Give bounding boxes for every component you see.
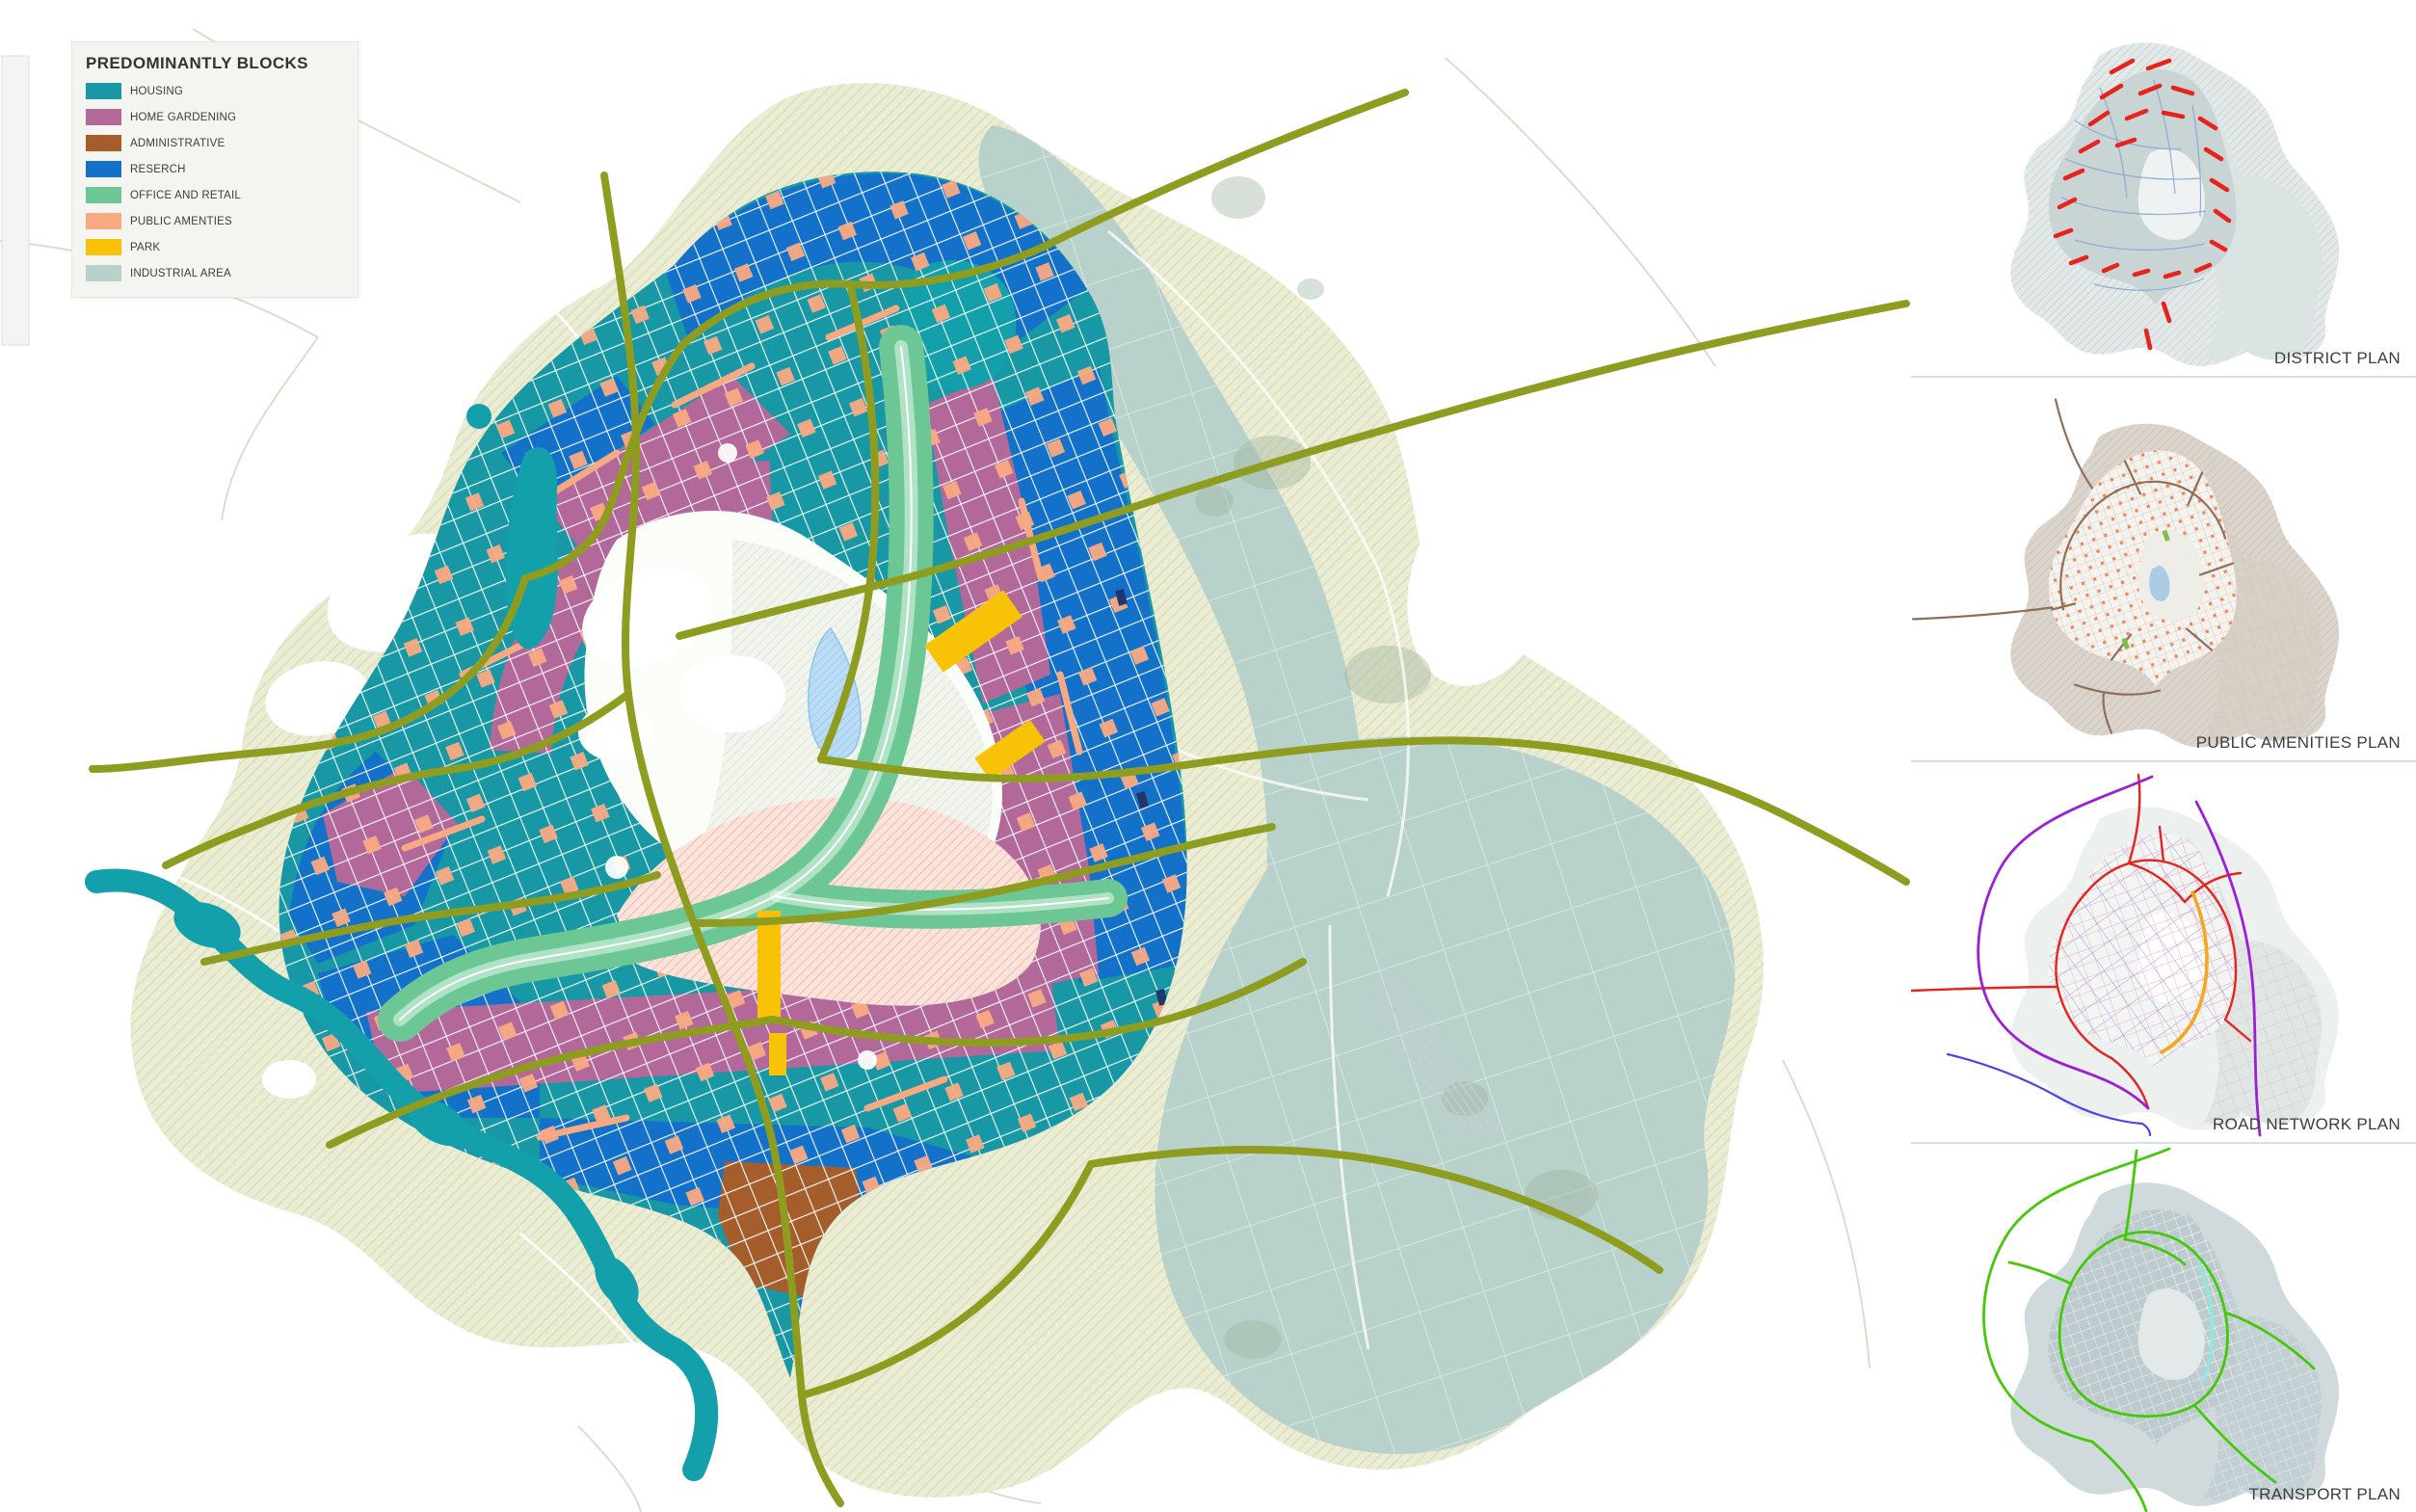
legend-item: PARK	[86, 239, 344, 255]
panel-label-road-network-plan: ROAD NETWORK PLAN	[2213, 1115, 2401, 1134]
legend-swatch-research	[86, 161, 121, 177]
panel-district-plan: DISTRICT PLAN	[1911, 0, 2416, 378]
legend-item: ADMINISTRATIVE	[86, 135, 344, 151]
legend-item: PUBLIC AMENTIES	[86, 213, 344, 229]
legend-swatch-administrative	[86, 135, 121, 151]
legend-swatch-public-amenities	[86, 213, 121, 229]
panel-label-district-plan: DISTRICT PLAN	[2274, 349, 2401, 368]
road-network-plan-map	[1911, 762, 2416, 1142]
legend-title: PREDOMINANTLY BLOCKS	[86, 54, 344, 73]
panel-road-network-plan: ROAD NETWORK PLAN	[1911, 762, 2416, 1144]
panel-public-amenities-plan: PUBLIC AMENITIES PLAN	[1911, 378, 2416, 762]
legend-item-label: INDUSTRIAL AREA	[130, 268, 231, 279]
legend-item-label: RESERCH	[130, 164, 186, 175]
legend-item-label: OFFICE AND RETAIL	[130, 190, 241, 201]
transport-plan-map	[1911, 1144, 2416, 1512]
crop-artifact	[2, 56, 29, 345]
panel-label-public-amenities-plan: PUBLIC AMENITIES PLAN	[2196, 733, 2401, 753]
panel-transport-plan: TRANSPORT PLAN	[1911, 1144, 2416, 1512]
panel-label-transport-plan: TRANSPORT PLAN	[2248, 1485, 2401, 1504]
legend-item-label: HOUSING	[130, 86, 183, 97]
legend-item: HOUSING	[86, 83, 344, 99]
legend-item: OFFICE AND RETAIL	[86, 187, 344, 203]
legend-item-label: HOME GARDENING	[130, 112, 236, 123]
side-plans-column: DISTRICT PLAN	[1911, 0, 2416, 1512]
legend-swatch-office-retail	[86, 187, 121, 203]
legend-swatch-park	[86, 239, 121, 255]
legend-item-label: PUBLIC AMENTIES	[130, 216, 232, 227]
legend-swatch-industrial	[86, 265, 121, 281]
district-plan-map	[1911, 0, 2416, 376]
legend-swatch-home-gardening	[86, 109, 121, 125]
legend-box: PREDOMINANTLY BLOCKS HOUSING HOME GARDEN…	[72, 42, 358, 297]
legend-item-label: PARK	[130, 242, 160, 253]
public-amenities-plan-map	[1911, 378, 2416, 760]
legend-item: HOME GARDENING	[86, 109, 344, 125]
legend-item-label: ADMINISTRATIVE	[130, 138, 225, 149]
legend-item: INDUSTRIAL AREA	[86, 265, 344, 281]
legend-item: RESERCH	[86, 161, 344, 177]
legend-swatch-housing	[86, 83, 121, 99]
